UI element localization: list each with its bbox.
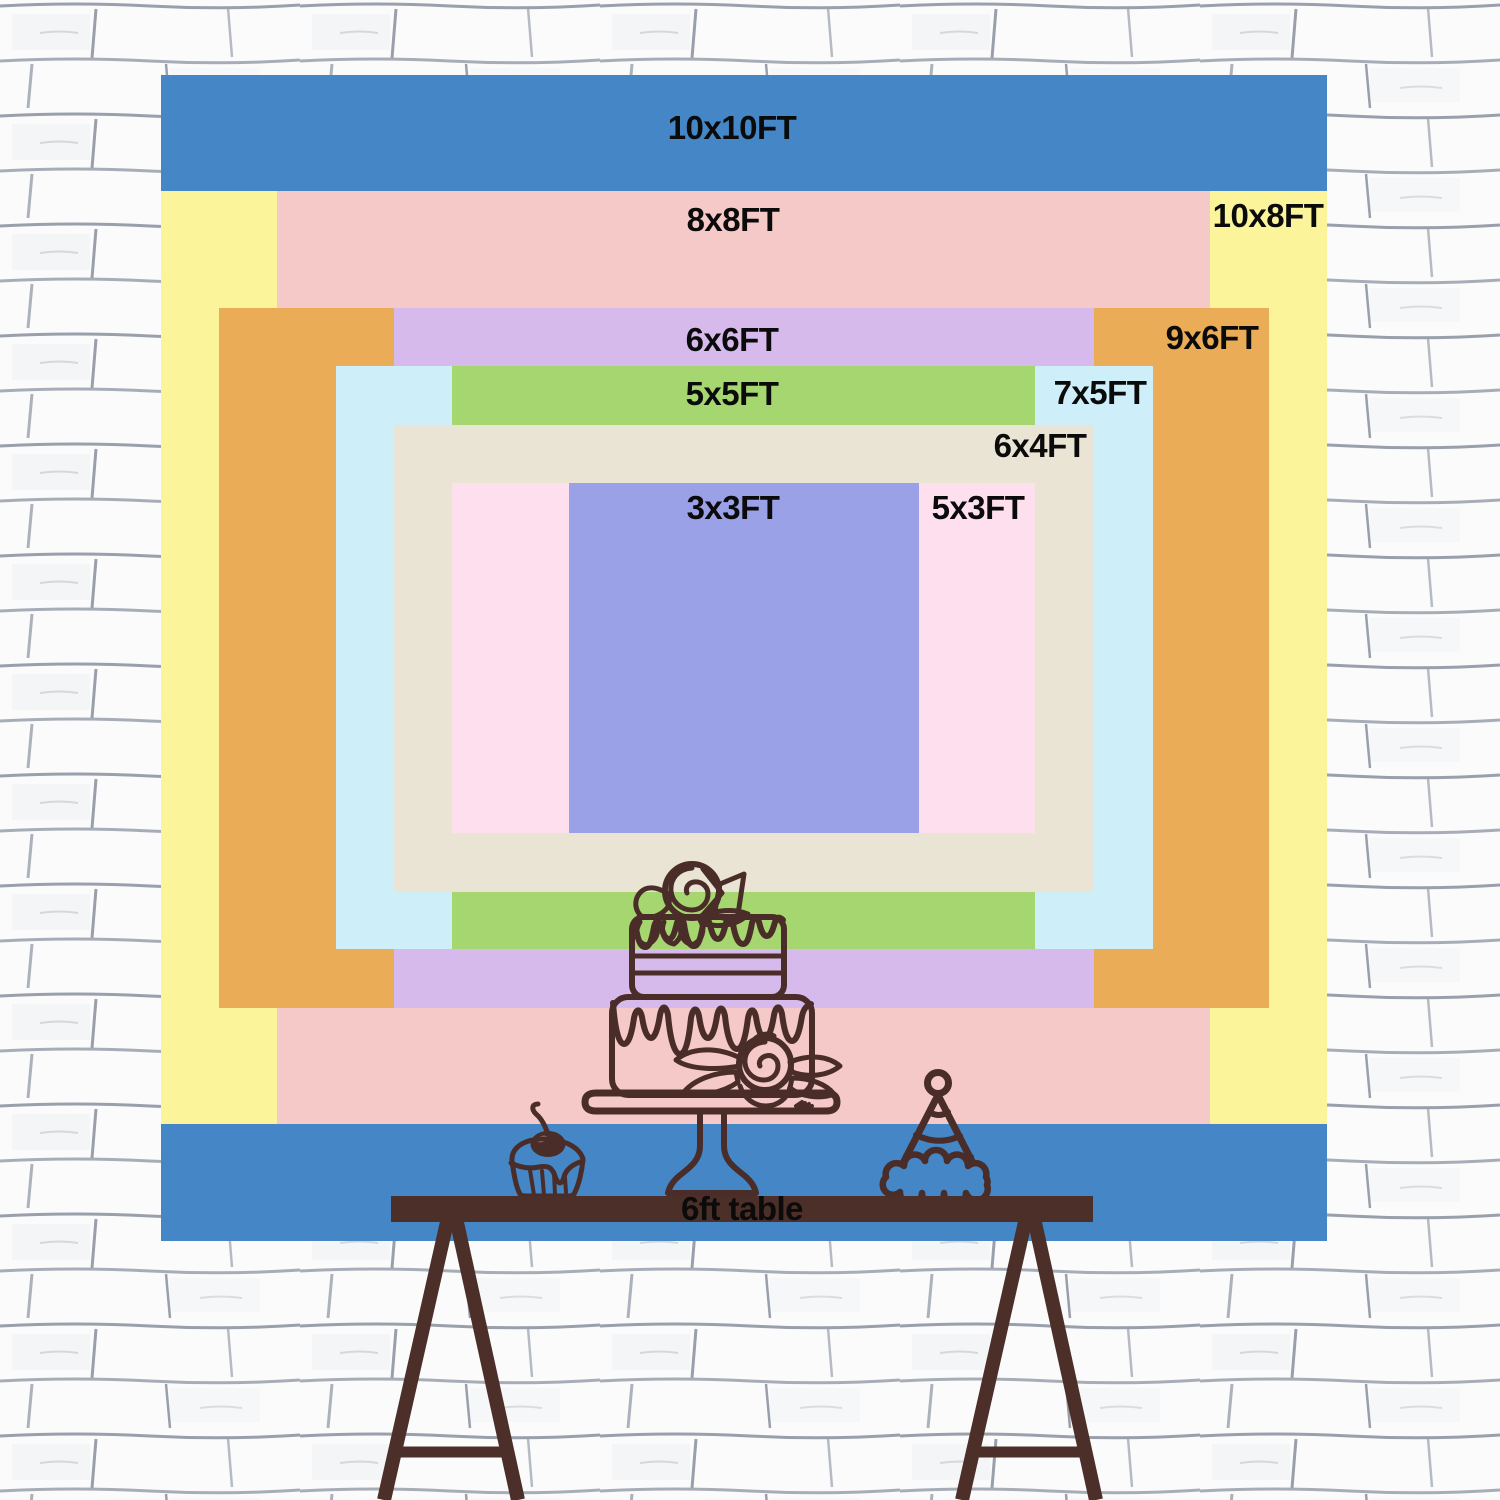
- table-legs: [384, 1200, 1096, 1500]
- decor-illustrations: [0, 0, 1500, 1500]
- party-hat-illustration: [883, 1073, 988, 1205]
- backdrop-size-chart: 10x10FT 10x8FT 8x8FT 9x6FT 6x6FT 7x5FT 5…: [0, 0, 1500, 1500]
- table-label: 6ft table: [681, 1190, 803, 1228]
- cupcake-illustration: [511, 1104, 583, 1196]
- birthday-cake-illustration: [585, 864, 840, 1193]
